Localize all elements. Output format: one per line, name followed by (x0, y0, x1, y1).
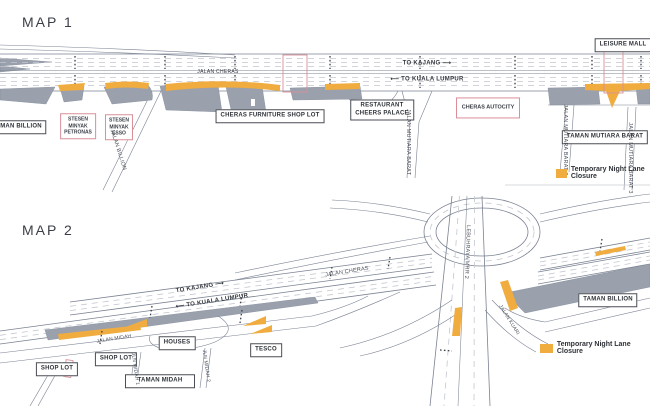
place-taman-billion-map2: TAMAN BILLION (578, 293, 637, 307)
road-label-to-kajang-map1: TO KAJANG ⟶ (403, 60, 452, 67)
map2-legend-label: Temporary Night Lane Closure (557, 341, 650, 355)
place-tesco: TESCO (250, 343, 282, 357)
place-shop-lot-1: SHOP LOT (36, 362, 78, 376)
lane-closure-maps-page: MAP 1 JALAN CHERAS TO KAJANG ⟶ ⟵ TO KUAL… (0, 0, 650, 406)
road-label-jalan-cheras-map1: JALAN CHERAS (197, 69, 238, 75)
place-houses: HOUSES (159, 336, 196, 350)
map1-roads (0, 45, 650, 192)
place-esso-station: STESEN MINYAK ESSO (105, 114, 133, 140)
street-jalan-mutiara-barat: JALAN MUTIARA BARAT (405, 109, 411, 175)
place-taman-mutiara-barat: TAMAN MUTIARA BARAT (562, 130, 648, 144)
map2-main-road (0, 254, 436, 363)
street-jalan-mutiara-barat-2: JALAN MUTIARA BARAT 2 (562, 104, 568, 175)
map2-title: MAP 2 (22, 222, 74, 238)
road-label-to-kuala-lumpur-map1: ⟵ TO KUALA LUMPUR (390, 76, 463, 83)
place-cheras-furniture-shop-lot: CHERAS FURNITURE SHOP LOT (216, 109, 325, 123)
place-taman-billion-map1: TAMAN BILLION (0, 120, 47, 134)
map1-legend-label: Temporary Night Lane Closure (571, 166, 650, 180)
street-jalan-mutiara-barat-3: JALAN MUTIARA BARAT 3 (627, 122, 633, 193)
place-leisure-mall: LEISURE MALL (595, 38, 650, 52)
place-petronas-station: STESEN MINYAK PETRONAS (60, 113, 96, 139)
map2-east-road (505, 238, 650, 332)
map2-roundabout (424, 198, 540, 266)
place-cheras-autocity: CHERAS AUTOCITY (456, 97, 520, 118)
map2-roads (0, 194, 650, 406)
map1-legend: Temporary Night Lane Closure (556, 166, 650, 180)
map2-legend: Temporary Night Lane Closure (540, 341, 650, 355)
closure-swatch-icon (556, 169, 567, 178)
closure-swatch-icon (540, 344, 553, 353)
map1-title: MAP 1 (22, 14, 74, 30)
